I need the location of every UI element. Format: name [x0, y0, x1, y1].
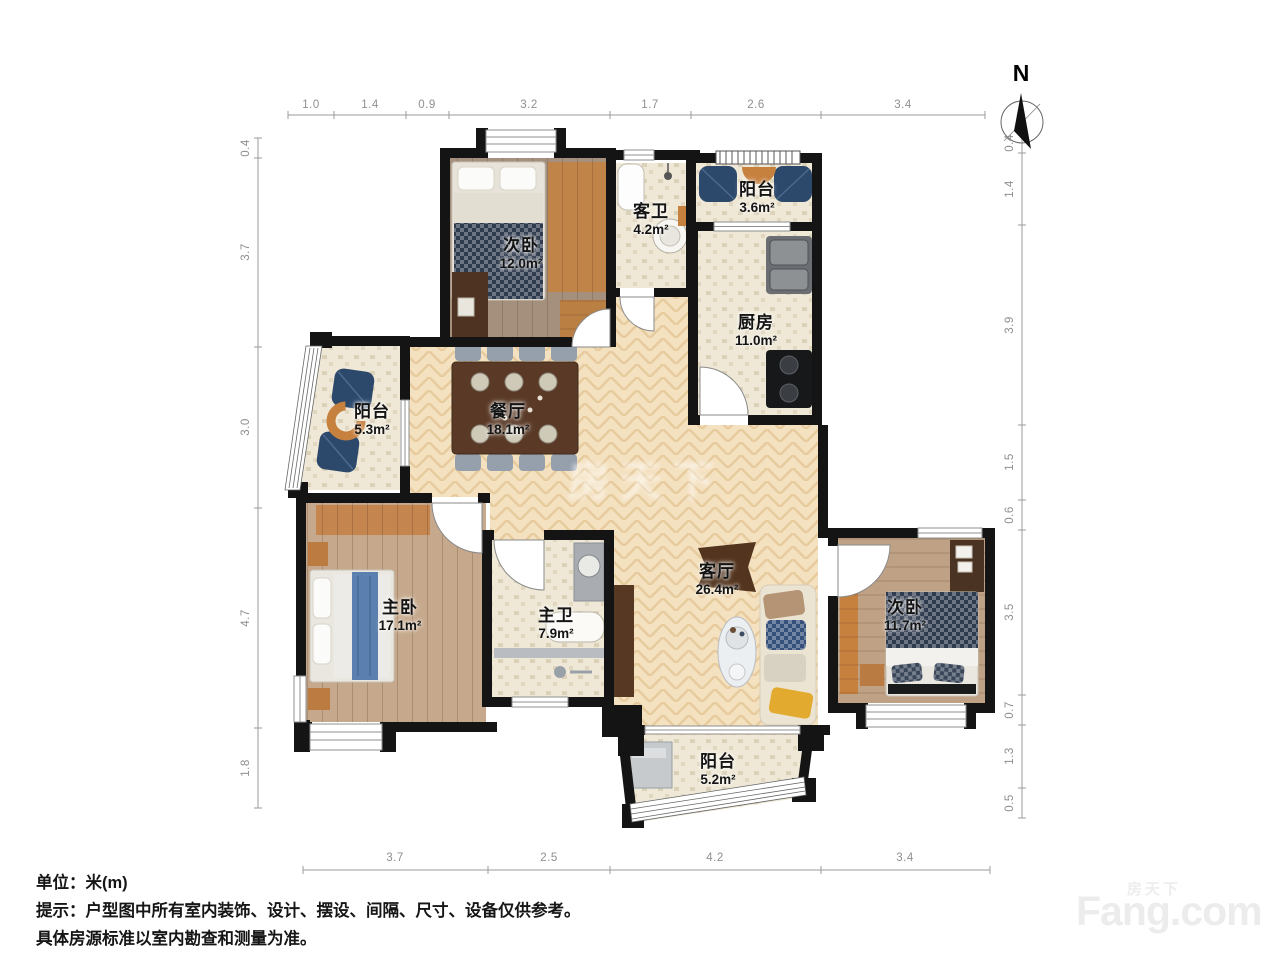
- tip-note-line1: 提示：户型图中所有室内装饰、设计、摆设、间隔、尺寸、设备仅供参考。: [36, 897, 581, 921]
- dim-right-3: 1.5: [1004, 453, 1016, 471]
- dim-bottom-2: 4.2: [706, 852, 724, 864]
- room-area: 18.1m²: [487, 422, 530, 438]
- dim-left-3: 4.7: [240, 609, 252, 627]
- dim-right-8: 0.5: [1004, 794, 1016, 812]
- room-area: 5.3m²: [354, 422, 390, 438]
- dim-left-2: 3.0: [240, 418, 252, 436]
- room-label-balcony-left: 阳台 5.3m²: [354, 402, 390, 438]
- room-label-balcony-bottom: 阳台 5.2m²: [700, 752, 736, 788]
- dim-top-0: 1.0: [302, 99, 320, 111]
- dim-right-0: 0.4: [1004, 134, 1016, 152]
- dim-top-5: 2.6: [747, 99, 765, 111]
- dim-right-5: 3.5: [1004, 603, 1016, 621]
- room-label-living: 客厅 26.4m²: [696, 562, 739, 598]
- room-area: 26.4m²: [696, 582, 739, 598]
- dim-top-4: 1.7: [641, 99, 659, 111]
- room-name: 厨房: [735, 313, 777, 333]
- room-name: 主卫: [538, 606, 574, 626]
- room-name: 餐厅: [487, 402, 530, 422]
- room-name: 阳台: [700, 752, 736, 772]
- dim-bottom-3: 3.4: [896, 852, 914, 864]
- dim-right-6: 0.7: [1004, 701, 1016, 719]
- room-label-dining: 餐厅 18.1m²: [487, 402, 530, 438]
- dim-top-1: 1.4: [361, 99, 379, 111]
- tip-note-line2: 具体房源标准以室内勘查和测量为准。: [36, 925, 317, 949]
- room-area: 5.2m²: [700, 772, 736, 788]
- room-label-bedroom1: 次卧 12.0m²: [500, 236, 543, 272]
- dim-top-2: 0.9: [418, 99, 436, 111]
- room-area: 11.7m²: [884, 618, 926, 634]
- dim-bottom-0: 3.7: [386, 852, 404, 864]
- room-label-balcony-top: 阳台 3.6m²: [739, 180, 775, 216]
- room-name: 次卧: [884, 598, 926, 618]
- dim-right-2: 3.9: [1004, 316, 1016, 334]
- room-name: 阳台: [739, 180, 775, 200]
- room-label-master-bedroom: 主卧 17.1m²: [379, 598, 422, 634]
- floorplan-graphic: [0, 0, 1280, 960]
- dim-left-0: 0.4: [240, 139, 252, 157]
- room-area: 4.2m²: [633, 222, 669, 238]
- room-area: 17.1m²: [379, 618, 422, 634]
- dim-left-1: 3.7: [240, 243, 252, 261]
- dim-right-4: 0.6: [1004, 506, 1016, 524]
- unit-note: 单位：米(m): [36, 869, 128, 893]
- room-name: 阳台: [354, 402, 390, 422]
- room-label-guest-bath: 客卫 4.2m²: [633, 202, 669, 238]
- dim-bottom-1: 2.5: [540, 852, 558, 864]
- room-area: 7.9m²: [538, 626, 574, 642]
- room-name: 客卫: [633, 202, 669, 222]
- dim-left-4: 1.8: [240, 759, 252, 777]
- fang-watermark-en: Fang.com: [1076, 888, 1262, 935]
- dim-top-3: 3.2: [520, 99, 538, 111]
- dim-right-7: 1.3: [1004, 747, 1016, 765]
- dim-top-6: 3.4: [894, 99, 912, 111]
- room-label-master-bath: 主卫 7.9m²: [538, 606, 574, 642]
- room-label-kitchen: 厨房 11.0m²: [735, 313, 777, 349]
- room-name: 主卧: [379, 598, 422, 618]
- room-area: 11.0m²: [735, 333, 777, 349]
- room-area: 3.6m²: [739, 200, 775, 216]
- north-label: N: [1013, 60, 1030, 87]
- room-name: 客厅: [696, 562, 739, 582]
- room-label-bedroom2: 次卧 11.7m²: [884, 598, 926, 634]
- dim-right-1: 1.4: [1004, 180, 1016, 198]
- room-name: 次卧: [500, 236, 543, 256]
- room-area: 12.0m²: [500, 256, 543, 272]
- floorplan-page: N 房天下 次卧 12.0m² 客卫 4.2m² 阳台 3.6m² 厨房 11.…: [0, 0, 1280, 960]
